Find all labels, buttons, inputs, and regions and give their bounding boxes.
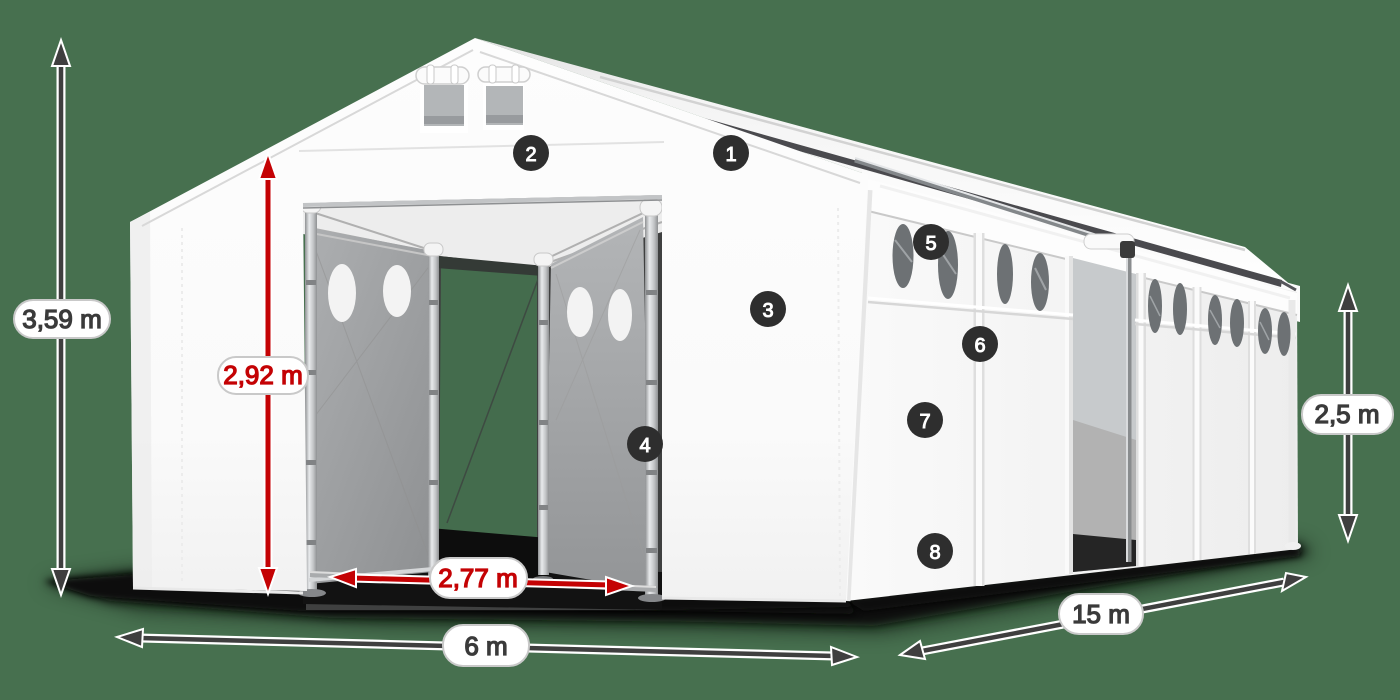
svg-text:2,92 m: 2,92 m (223, 360, 303, 390)
svg-text:7: 7 (919, 411, 930, 433)
svg-text:6: 6 (974, 335, 985, 357)
svg-text:3,59 m: 3,59 m (22, 304, 102, 334)
svg-text:15 m: 15 m (1072, 599, 1130, 629)
svg-text:8: 8 (929, 542, 940, 564)
svg-text:2: 2 (525, 144, 536, 166)
svg-text:1: 1 (725, 144, 736, 166)
svg-text:4: 4 (639, 435, 650, 457)
svg-text:3: 3 (762, 300, 773, 322)
svg-text:5: 5 (925, 233, 936, 255)
svg-text:6 m: 6 m (464, 631, 507, 661)
svg-text:2,77 m: 2,77 m (438, 563, 518, 593)
svg-text:2,5 m: 2,5 m (1314, 399, 1379, 429)
